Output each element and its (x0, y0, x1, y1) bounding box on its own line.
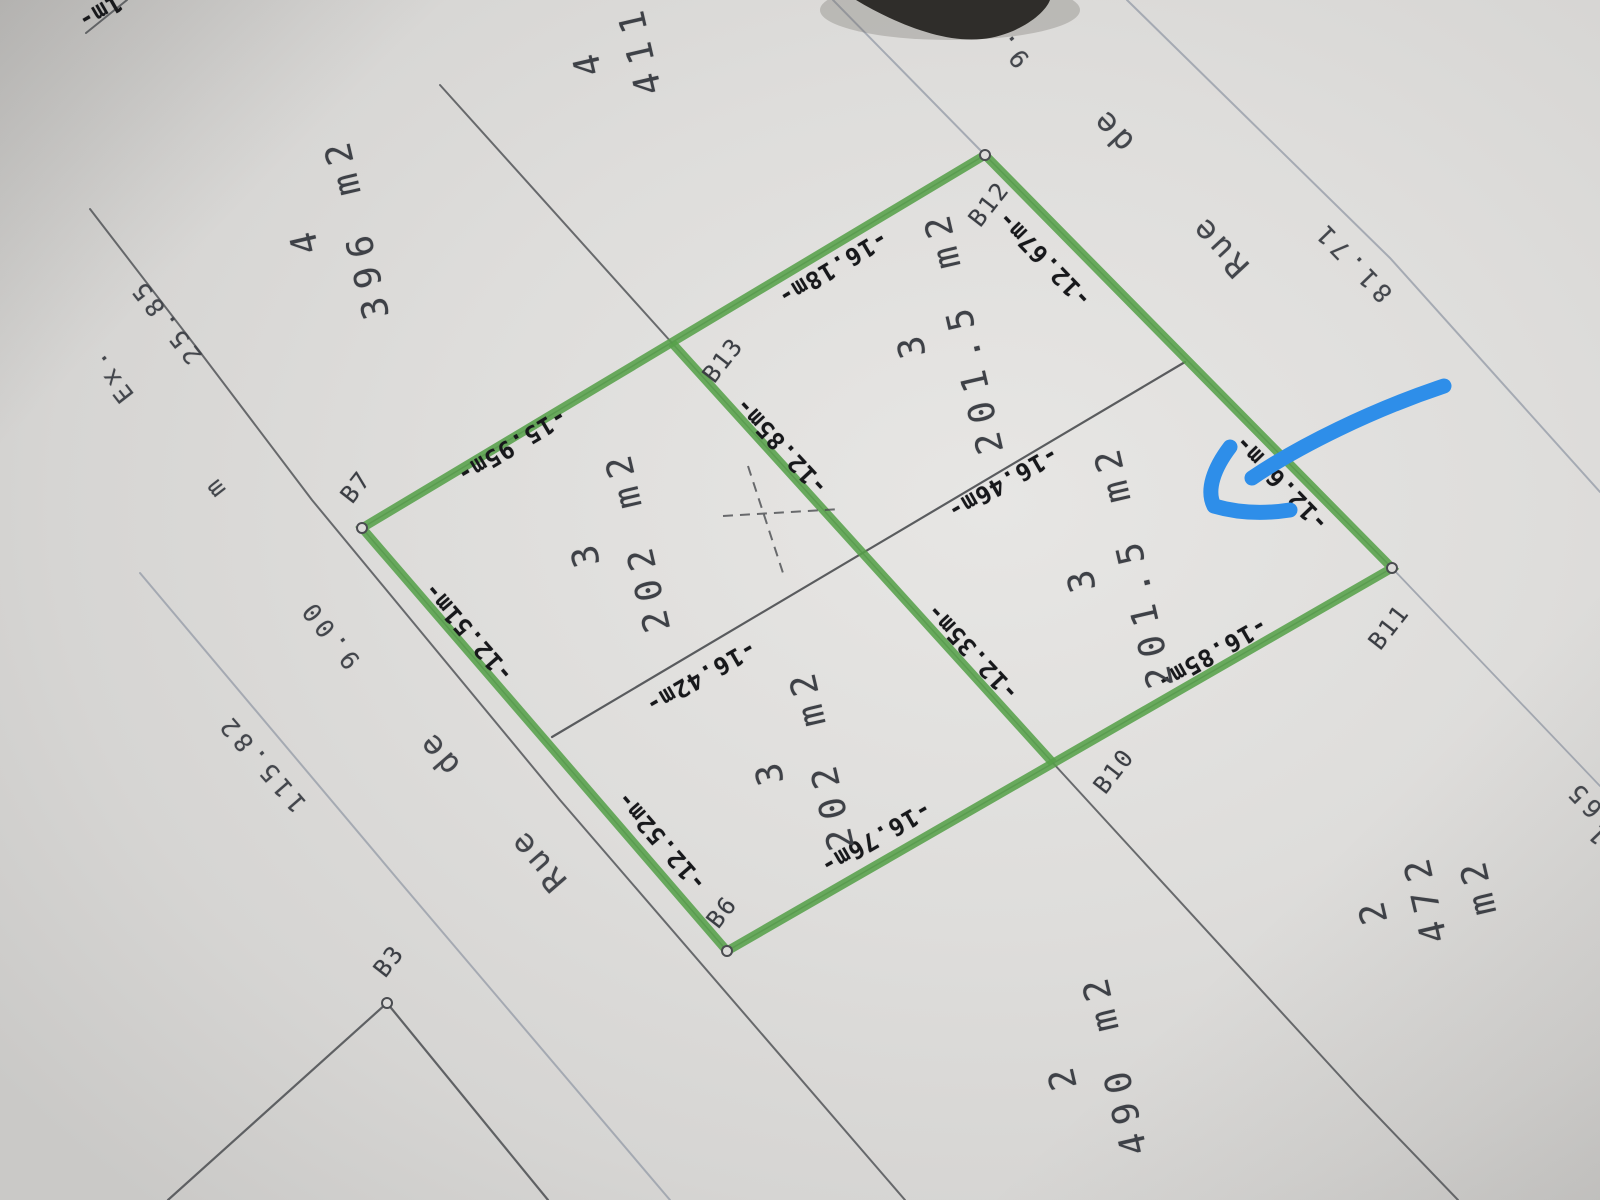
blue-annotation-arrow (1211, 386, 1444, 512)
plan-overlay-svg (0, 0, 1600, 1200)
cadastral-plan-photo: -15.95m--16.18m--12.67m--12.67m--12.51m-… (0, 0, 1600, 1200)
